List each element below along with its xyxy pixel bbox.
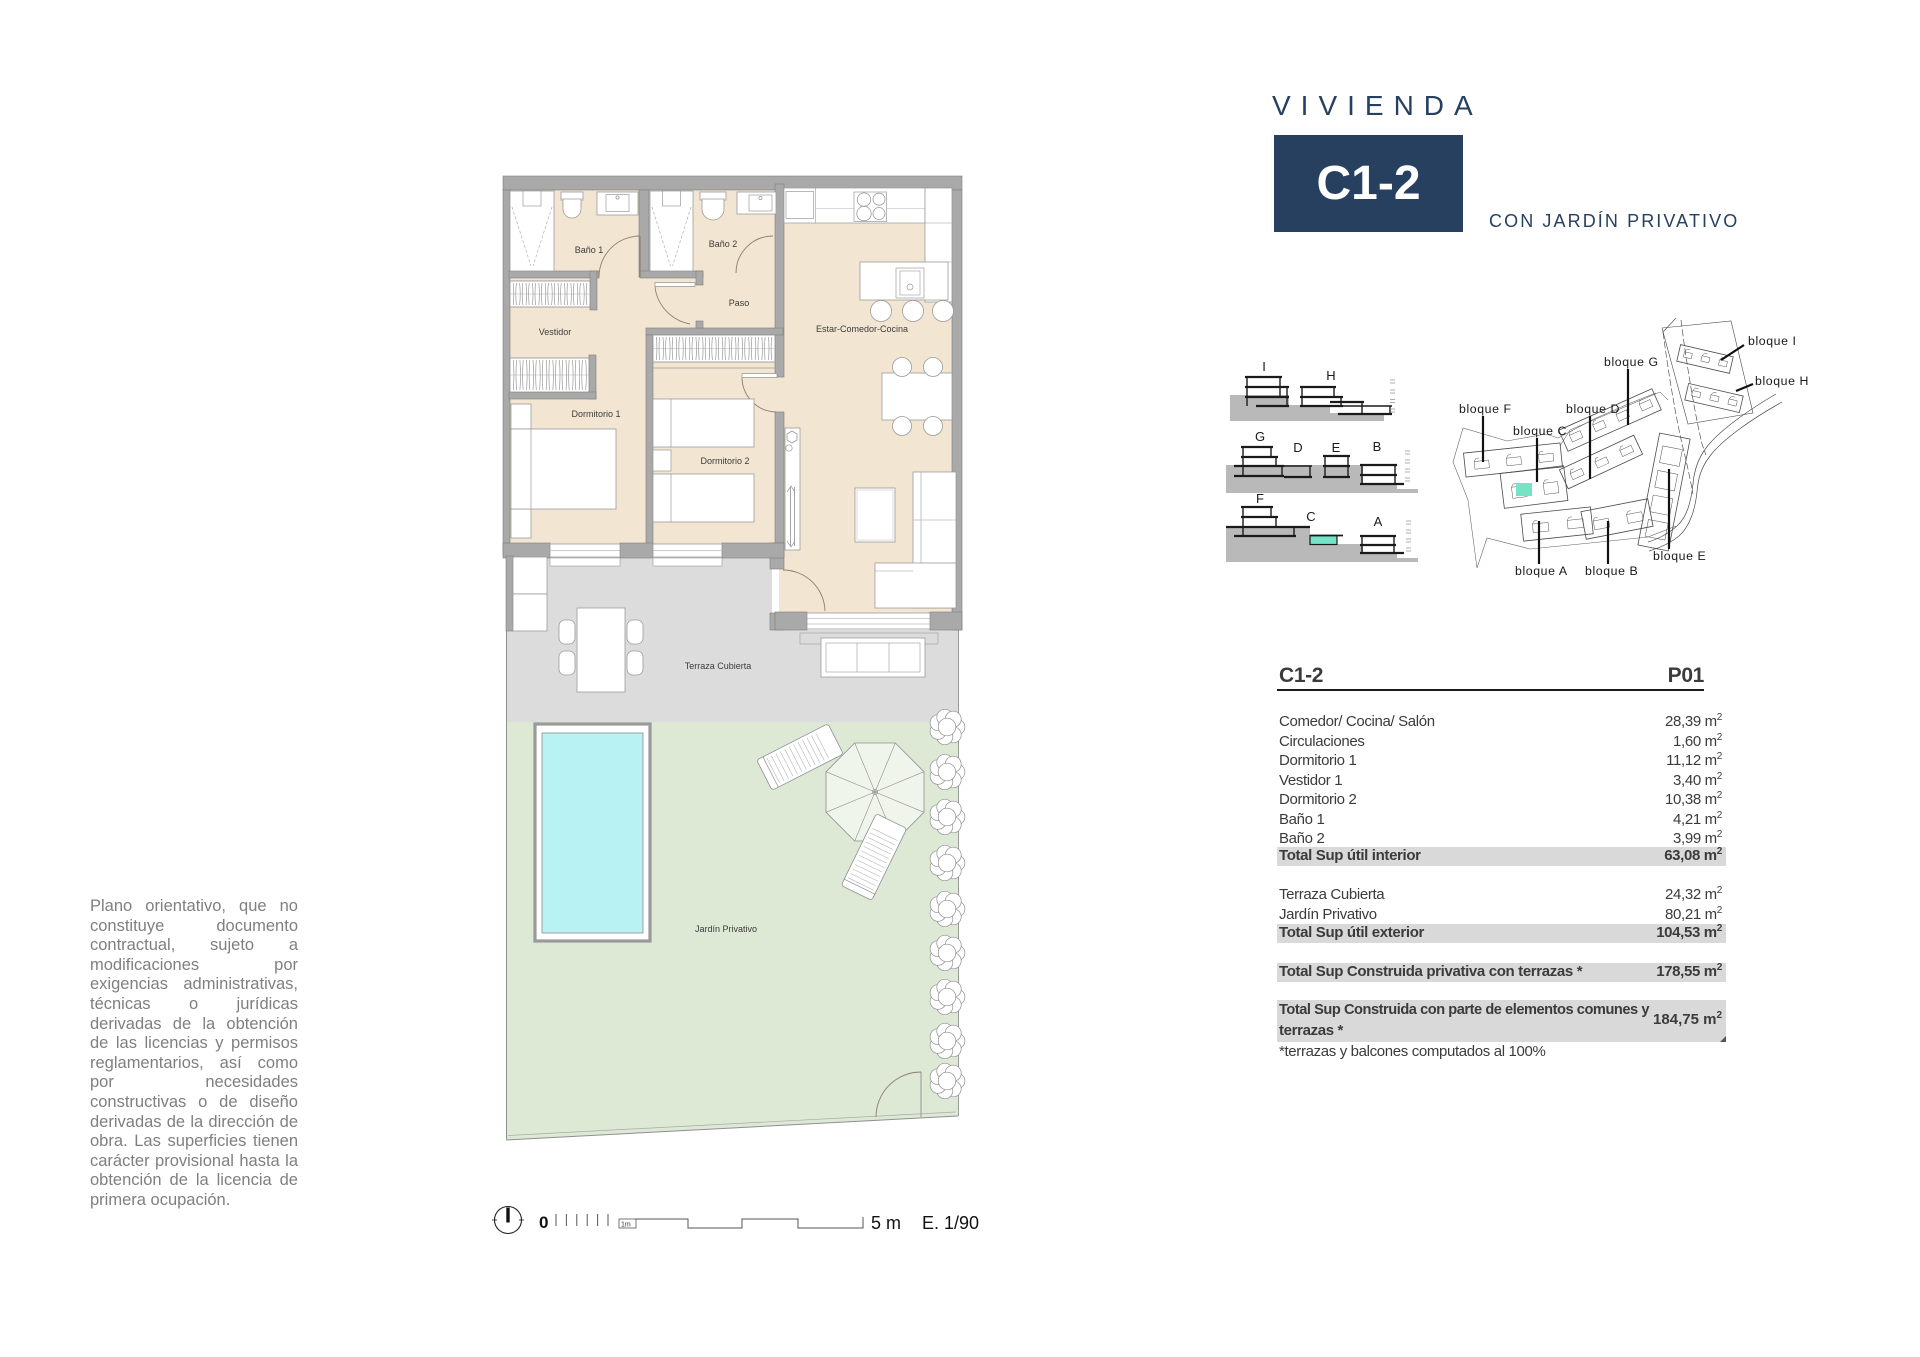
svg-text:E: E [1332,440,1341,455]
svg-text:Paso: Paso [729,298,750,308]
svg-text:E. 1/90: E. 1/90 [922,1213,979,1233]
svg-text:D: D [1293,440,1302,455]
svg-text:G: G [1255,429,1265,444]
svg-text:Estar-Comedor-Cocina: Estar-Comedor-Cocina [816,324,908,334]
svg-text:0: 0 [539,1213,548,1232]
svg-text:Baño 1: Baño 1 [575,245,604,255]
svg-text:bloque F: bloque F [1459,402,1512,416]
svg-text:bloque E: bloque E [1653,549,1706,563]
svg-text:Dormitorio 2: Dormitorio 2 [700,456,749,466]
svg-text:bloque H: bloque H [1755,374,1809,388]
svg-text:A: A [1374,514,1383,529]
svg-text:I: I [1262,359,1266,374]
svg-text:1m: 1m [621,1222,631,1229]
svg-text:5 m: 5 m [871,1213,901,1233]
svg-text:bloque B: bloque B [1585,564,1638,578]
svg-text:Vestidor: Vestidor [539,327,572,337]
svg-text:bloque C: bloque C [1513,424,1567,438]
svg-text:bloque I: bloque I [1748,334,1797,348]
svg-text:Jardín Privativo: Jardín Privativo [695,924,757,934]
svg-text:Dormitorio 1: Dormitorio 1 [571,409,620,419]
svg-text:bloque A: bloque A [1515,564,1568,578]
svg-text:Terraza Cubierta: Terraza Cubierta [685,661,752,671]
svg-text:bloque G: bloque G [1604,355,1659,369]
svg-text:Baño 2: Baño 2 [709,239,738,249]
svg-text:F: F [1256,491,1264,506]
svg-text:bloque D: bloque D [1566,402,1620,416]
svg-text:B: B [1373,439,1382,454]
svg-text:C: C [1306,509,1315,524]
svg-text:H: H [1326,368,1335,383]
